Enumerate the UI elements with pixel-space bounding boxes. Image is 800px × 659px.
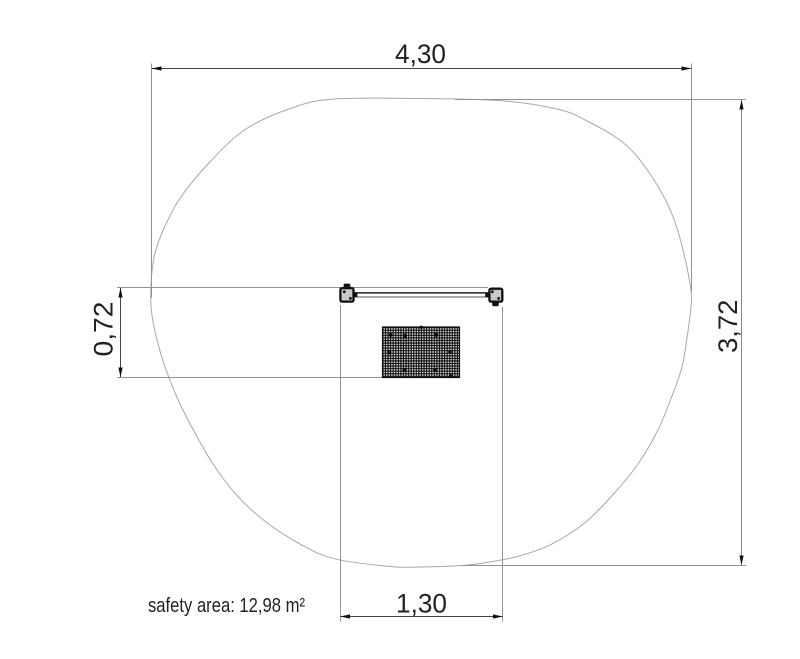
svg-text:1,30: 1,30: [396, 589, 447, 619]
svg-text:4,30: 4,30: [395, 39, 446, 69]
svg-text:0,72: 0,72: [88, 302, 118, 357]
svg-text:3,72: 3,72: [713, 300, 743, 354]
svg-text:safety area: 12,98 m²: safety area: 12,98 m²: [148, 594, 305, 617]
